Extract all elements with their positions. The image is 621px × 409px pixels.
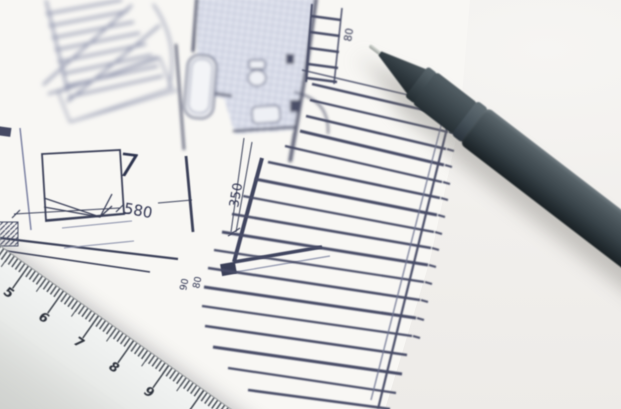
room-drawing: 7 580 350 90 80 bbox=[0, 126, 330, 291]
hatched-wall-block bbox=[0, 222, 18, 246]
staircase-drawing bbox=[43, 0, 178, 122]
door-arc-drawing bbox=[153, 4, 172, 87]
wall-line bbox=[186, 156, 193, 232]
dimension-label-80-top: 80 bbox=[342, 27, 356, 42]
sink-drawing bbox=[251, 105, 280, 124]
photo-scene: 7 580 350 90 80 bbox=[0, 0, 621, 409]
dimension-label-580: 580 bbox=[123, 199, 154, 222]
fixture-mark bbox=[290, 100, 299, 112]
wall-mark bbox=[0, 126, 11, 137]
dimension-label-80: 80 bbox=[191, 276, 204, 290]
bathtub-drawing bbox=[183, 54, 217, 119]
fixture-mark bbox=[286, 54, 294, 64]
room-number-label: 7 bbox=[115, 146, 142, 186]
toilet-drawing bbox=[248, 60, 266, 86]
dimension-label-90: 90 bbox=[178, 278, 191, 292]
